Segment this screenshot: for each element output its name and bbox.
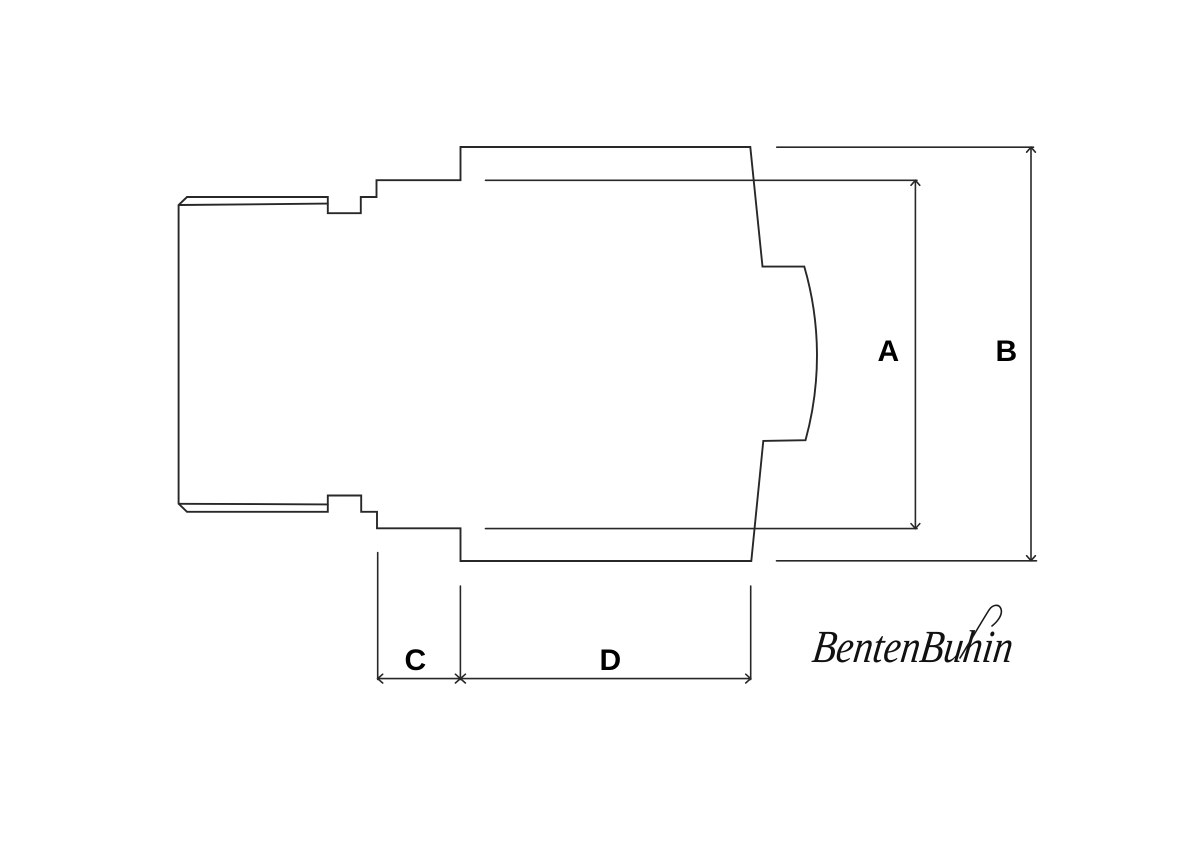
svg-text:A: A [878, 335, 900, 368]
svg-text:D: D [600, 644, 622, 677]
svg-text:BentenBuhin: BentenBuhin [810, 621, 1017, 672]
svg-text:C: C [405, 644, 427, 677]
svg-text:B: B [996, 335, 1018, 368]
